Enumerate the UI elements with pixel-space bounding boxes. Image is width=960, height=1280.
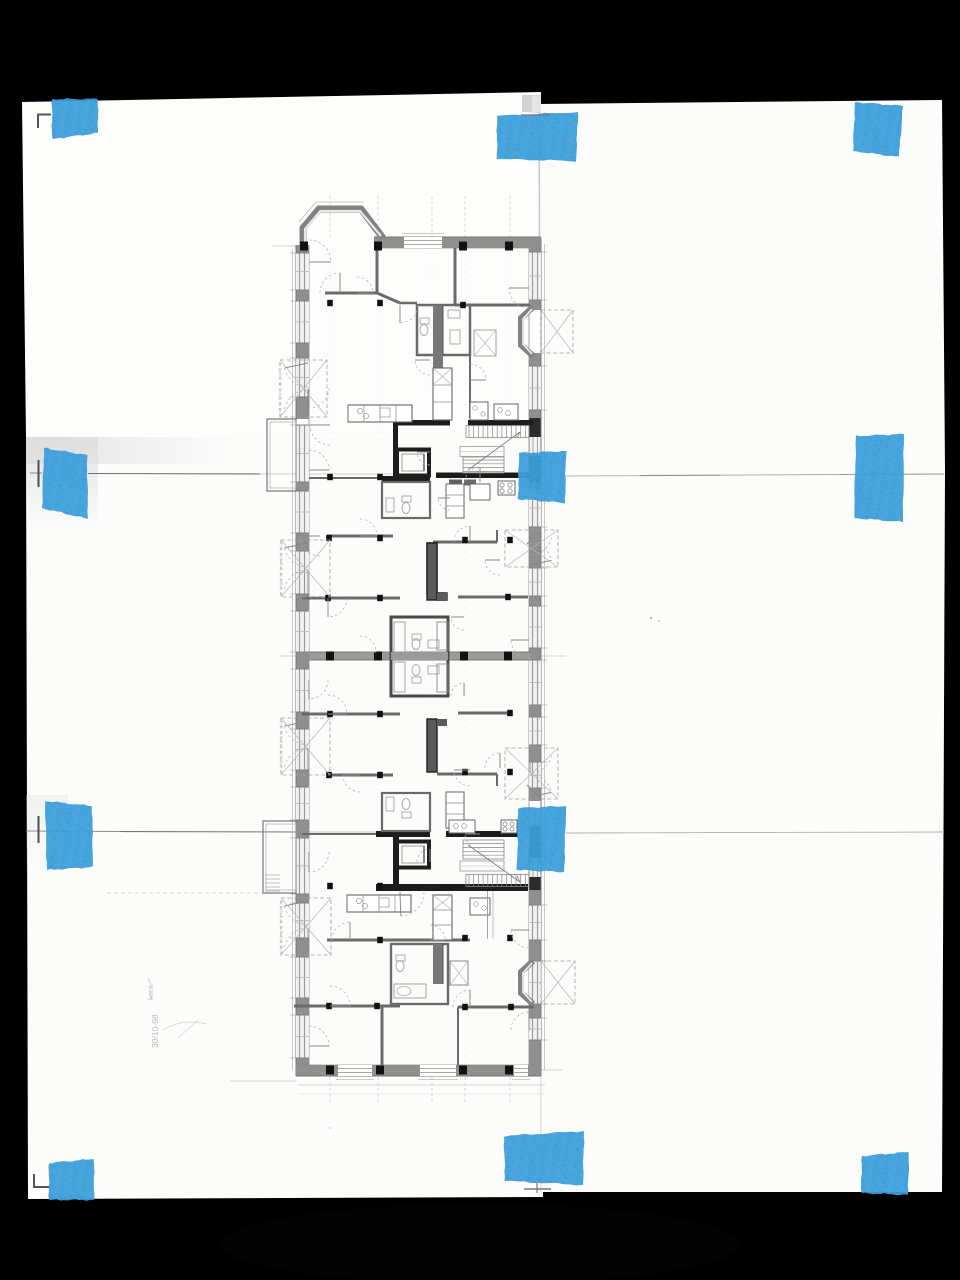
svg-text:30/10-98: 30/10-98: [150, 1014, 160, 1048]
svg-text:kont.: kont.: [146, 984, 155, 1000]
